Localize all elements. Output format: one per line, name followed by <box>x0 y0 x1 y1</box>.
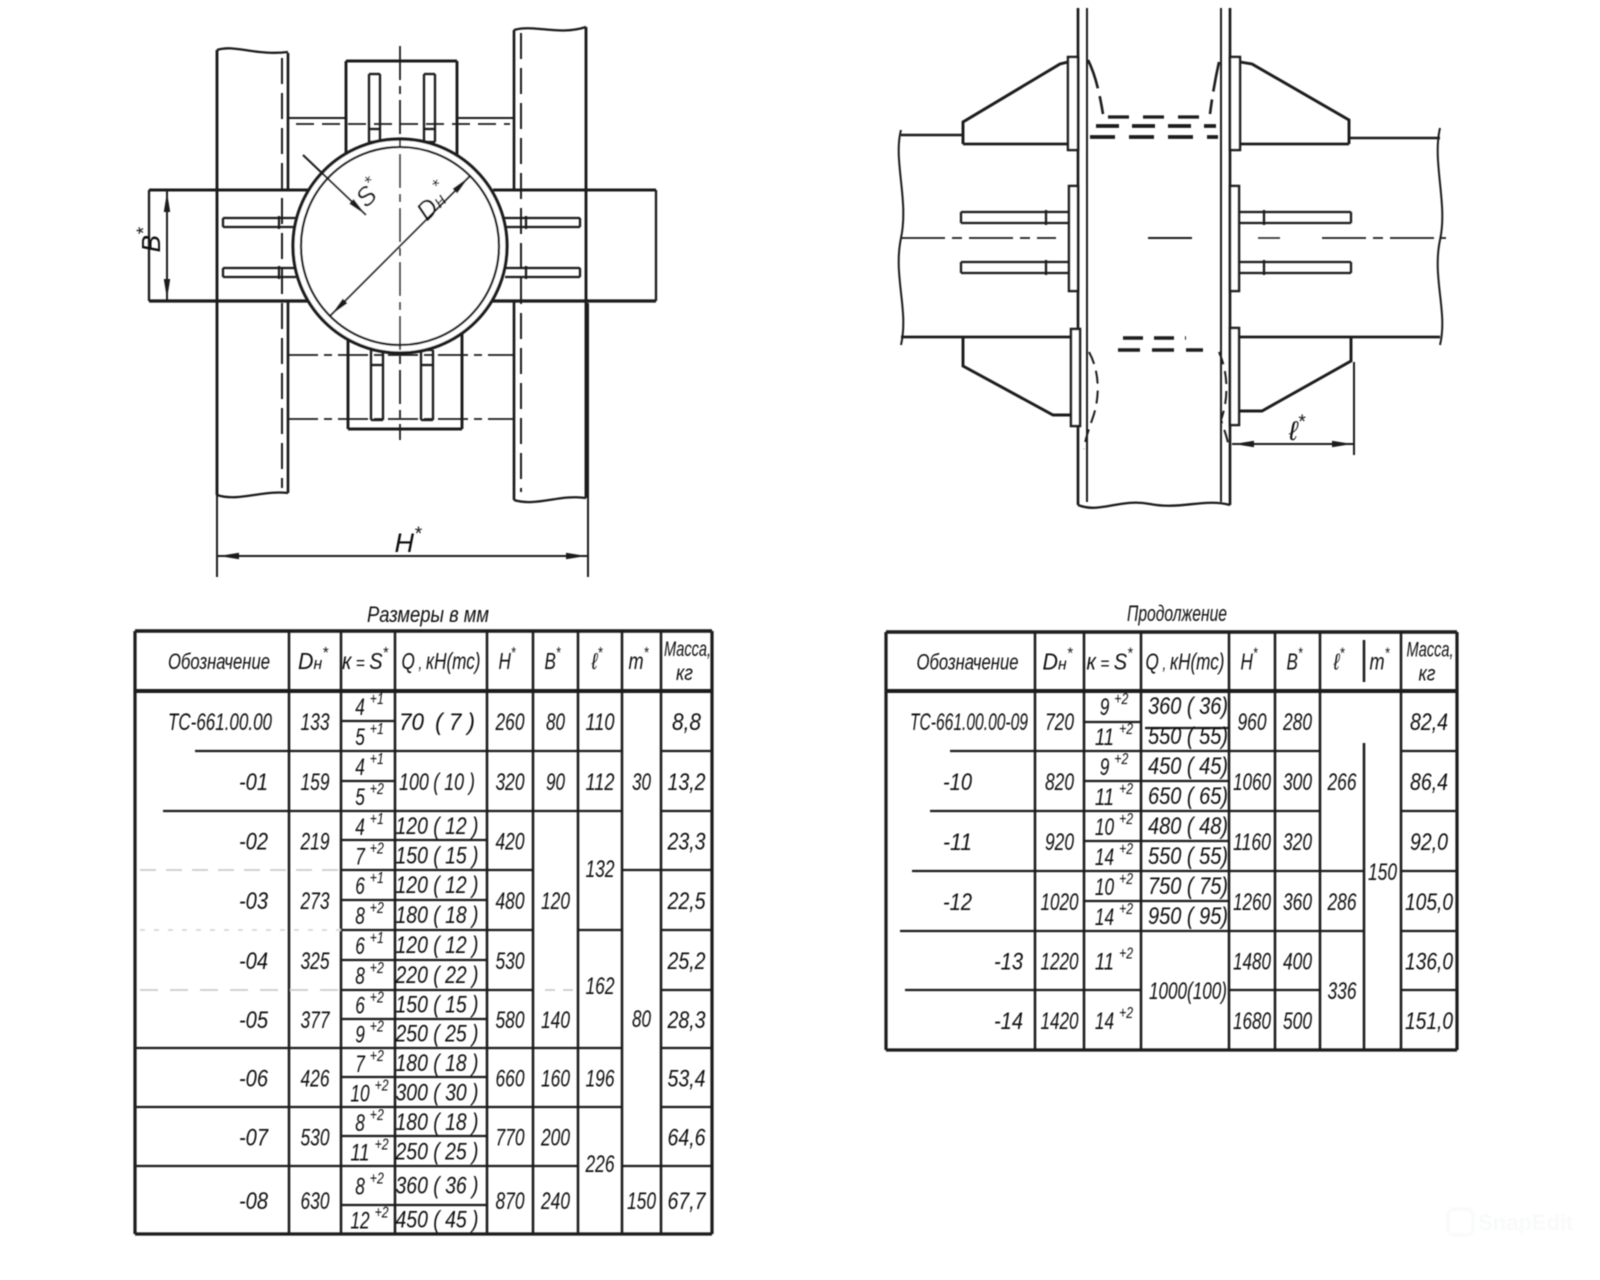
svg-text:+2: +2 <box>370 1107 384 1124</box>
svg-text:150: 150 <box>627 1188 656 1215</box>
svg-text:Q , кН(тс): Q , кН(тс) <box>402 648 481 674</box>
svg-text:4: 4 <box>355 754 365 781</box>
svg-text:-10: -10 <box>943 769 973 796</box>
svg-text:28,3: 28,3 <box>667 1007 706 1034</box>
svg-text:180 ( 18 ): 180 ( 18 ) <box>396 1109 479 1136</box>
svg-text:-14: -14 <box>994 1008 1023 1035</box>
svg-text:320: 320 <box>496 769 525 796</box>
svg-text:-02: -02 <box>239 829 268 856</box>
svg-text:+2: +2 <box>1119 841 1133 858</box>
svg-text:30: 30 <box>632 769 651 796</box>
svg-text:+2: +2 <box>370 990 384 1007</box>
svg-text:950 ( 95): 950 ( 95) <box>1148 903 1228 930</box>
svg-text:-06: -06 <box>239 1066 269 1093</box>
svg-text:1480: 1480 <box>1233 949 1271 976</box>
svg-text:6: 6 <box>355 993 365 1020</box>
svg-text:250 ( 25 ): 250 ( 25 ) <box>395 1138 479 1165</box>
svg-text:25,2: 25,2 <box>667 948 706 975</box>
svg-text:Q , кН(тс): Q , кН(тс) <box>1146 649 1225 675</box>
svg-text:260: 260 <box>495 709 525 736</box>
svg-text:377: 377 <box>301 1007 331 1034</box>
svg-text:8: 8 <box>355 1110 365 1137</box>
svg-text:-11: -11 <box>943 829 972 856</box>
svg-text:300 ( 30 ): 300 ( 30 ) <box>396 1079 479 1106</box>
svg-text:Размеры в мм: Размеры в мм <box>367 602 489 627</box>
svg-text:336: 336 <box>1328 978 1357 1005</box>
svg-text:23,3: 23,3 <box>667 829 706 856</box>
svg-text:13,2: 13,2 <box>668 769 706 796</box>
svg-text:530: 530 <box>301 1125 330 1152</box>
svg-text:250 ( 25 ): 250 ( 25 ) <box>395 1021 479 1048</box>
svg-text:9: 9 <box>1100 754 1110 781</box>
svg-text:480: 480 <box>496 888 525 915</box>
svg-text:400: 400 <box>1283 949 1312 976</box>
svg-text:64,6: 64,6 <box>668 1125 707 1152</box>
svg-text:159: 159 <box>301 769 330 796</box>
svg-text:+2: +2 <box>1119 946 1133 963</box>
svg-text:320: 320 <box>1283 829 1312 856</box>
svg-text:720: 720 <box>1045 709 1074 736</box>
svg-text:150 ( 15 ): 150 ( 15 ) <box>396 992 479 1019</box>
svg-text:1220: 1220 <box>1041 949 1079 976</box>
svg-text:100 ( 10 ): 100 ( 10 ) <box>399 769 475 796</box>
svg-text:140: 140 <box>541 1007 570 1034</box>
svg-text:136,0: 136,0 <box>1405 949 1454 976</box>
svg-text:8: 8 <box>355 963 365 990</box>
svg-text:650 ( 65): 650 ( 65) <box>1148 783 1228 810</box>
svg-text:580: 580 <box>496 1007 525 1034</box>
svg-text:14: 14 <box>1095 1008 1114 1035</box>
svg-text:4: 4 <box>355 814 365 841</box>
svg-text:-13: -13 <box>994 949 1024 976</box>
svg-text:750 ( 75): 750 ( 75) <box>1148 873 1228 900</box>
svg-text:286: 286 <box>1327 889 1357 916</box>
svg-text:SnapEdit: SnapEdit <box>1478 1210 1574 1235</box>
svg-text:660: 660 <box>496 1066 525 1093</box>
svg-text:-03: -03 <box>239 888 269 915</box>
svg-text:8: 8 <box>355 1174 365 1201</box>
svg-text:133: 133 <box>301 709 330 736</box>
svg-text:420: 420 <box>496 829 525 856</box>
svg-text:4: 4 <box>355 694 365 721</box>
svg-text:-01: -01 <box>239 769 268 796</box>
svg-text:7: 7 <box>355 843 366 870</box>
svg-text:1000(100): 1000(100) <box>1149 978 1227 1005</box>
svg-text:162: 162 <box>586 973 615 1000</box>
svg-text:11: 11 <box>1095 724 1114 751</box>
svg-text:+2: +2 <box>1119 781 1133 798</box>
svg-text:9: 9 <box>355 1022 365 1049</box>
svg-text:550 ( 55): 550 ( 55) <box>1148 843 1228 870</box>
svg-text:70 ( 7 ): 70 ( 7 ) <box>399 709 475 736</box>
svg-text:Обозначение: Обозначение <box>917 650 1019 675</box>
svg-text:+2: +2 <box>370 900 384 917</box>
svg-text:+2: +2 <box>1119 811 1133 828</box>
svg-text:450 ( 45 ): 450 ( 45 ) <box>396 1207 479 1234</box>
svg-text:630: 630 <box>301 1188 330 1215</box>
svg-text:266: 266 <box>1327 769 1357 796</box>
svg-text:кг: кг <box>1419 663 1436 686</box>
svg-text:10: 10 <box>1095 814 1115 841</box>
svg-text:6: 6 <box>355 933 365 960</box>
svg-text:220 ( 22 ): 220 ( 22 ) <box>395 962 479 989</box>
svg-text:53,4: 53,4 <box>668 1066 706 1093</box>
svg-text:-12: -12 <box>943 889 972 916</box>
svg-text:8,8: 8,8 <box>672 709 702 736</box>
svg-text:Обозначение: Обозначение <box>168 649 270 674</box>
svg-text:+2: +2 <box>370 840 384 857</box>
svg-text:+2: +2 <box>1119 871 1133 888</box>
svg-text:160: 160 <box>541 1066 570 1093</box>
svg-text:500: 500 <box>1283 1008 1312 1035</box>
svg-text:426: 426 <box>301 1066 330 1093</box>
svg-text:112: 112 <box>586 769 615 796</box>
svg-text:+1: +1 <box>370 870 384 887</box>
svg-text:120: 120 <box>541 888 570 915</box>
svg-text:150: 150 <box>1368 859 1397 886</box>
svg-text:180 ( 18 ): 180 ( 18 ) <box>396 1050 479 1077</box>
svg-text:+2: +2 <box>1114 751 1128 768</box>
svg-text:+2: +2 <box>1114 691 1128 708</box>
svg-text:11: 11 <box>1095 784 1114 811</box>
svg-text:8: 8 <box>355 903 365 930</box>
svg-text:1060: 1060 <box>1233 769 1271 796</box>
svg-text:+2: +2 <box>370 1019 384 1036</box>
svg-text:480 ( 48): 480 ( 48) <box>1148 813 1228 840</box>
svg-text:226: 226 <box>585 1151 615 1178</box>
svg-text:820: 820 <box>1045 769 1074 796</box>
svg-text:22,5: 22,5 <box>667 888 706 915</box>
svg-text:ТС-661.00.00: ТС-661.00.00 <box>168 709 272 736</box>
svg-text:450 ( 45): 450 ( 45) <box>1148 753 1228 780</box>
svg-text:1420: 1420 <box>1041 1008 1079 1035</box>
svg-text:+1: +1 <box>370 751 384 768</box>
svg-text:110: 110 <box>586 709 615 736</box>
svg-text:+2: +2 <box>375 1205 389 1222</box>
svg-text:300: 300 <box>1283 769 1312 796</box>
svg-text:+2: +2 <box>375 1077 389 1094</box>
svg-text:1020: 1020 <box>1041 889 1079 916</box>
svg-text:960: 960 <box>1238 709 1267 736</box>
svg-text:+2: +2 <box>370 960 384 977</box>
svg-text:360 ( 36): 360 ( 36) <box>1148 693 1228 720</box>
svg-text:120 ( 12 ): 120 ( 12 ) <box>396 932 479 959</box>
svg-text:+2: +2 <box>370 781 384 798</box>
svg-text:870: 870 <box>496 1188 525 1215</box>
svg-text:+1: +1 <box>370 930 384 947</box>
svg-text:+2: +2 <box>1119 1005 1133 1022</box>
svg-text:-05: -05 <box>239 1007 269 1034</box>
svg-text:105,0: 105,0 <box>1405 889 1454 916</box>
svg-text:-08: -08 <box>239 1188 269 1215</box>
svg-text:5: 5 <box>355 784 365 811</box>
svg-text:273: 273 <box>300 888 330 915</box>
svg-text:-04: -04 <box>239 948 268 975</box>
svg-text:+2: +2 <box>375 1136 389 1153</box>
svg-text:кг: кг <box>676 662 693 685</box>
svg-text:10: 10 <box>1095 874 1115 901</box>
svg-text:150 ( 15 ): 150 ( 15 ) <box>396 842 479 869</box>
svg-text:14: 14 <box>1095 844 1114 871</box>
svg-text:12: 12 <box>350 1208 369 1235</box>
svg-text:132: 132 <box>586 856 615 883</box>
svg-text:1260: 1260 <box>1233 889 1271 916</box>
svg-text:11: 11 <box>350 1139 369 1166</box>
svg-text:14: 14 <box>1095 904 1114 931</box>
svg-text:200: 200 <box>540 1125 570 1152</box>
svg-text:280: 280 <box>1282 709 1312 736</box>
svg-text:Масса,: Масса, <box>664 638 711 661</box>
svg-text:-07: -07 <box>239 1125 269 1152</box>
svg-text:+2: +2 <box>370 1048 384 1065</box>
svg-text:86,4: 86,4 <box>1410 769 1448 796</box>
svg-text:82,4: 82,4 <box>1410 709 1448 736</box>
svg-text:920: 920 <box>1045 829 1074 856</box>
svg-text:1680: 1680 <box>1233 1008 1271 1035</box>
svg-text:67,7: 67,7 <box>668 1188 707 1215</box>
svg-text:9: 9 <box>1100 694 1110 721</box>
svg-text:240: 240 <box>540 1188 570 1215</box>
svg-text:+1: +1 <box>370 811 384 828</box>
svg-text:151,0: 151,0 <box>1405 1008 1454 1035</box>
svg-text:+2: +2 <box>1119 721 1133 738</box>
svg-text:5: 5 <box>355 724 365 751</box>
svg-text:6: 6 <box>355 873 365 900</box>
svg-text:+1: +1 <box>370 691 384 708</box>
svg-text:219: 219 <box>300 829 330 856</box>
svg-text:360: 360 <box>1283 889 1312 916</box>
svg-text:7: 7 <box>355 1051 366 1078</box>
svg-text:120 ( 12 ): 120 ( 12 ) <box>396 872 479 899</box>
svg-text:92,0: 92,0 <box>1410 829 1449 856</box>
svg-text:120 ( 12 ): 120 ( 12 ) <box>396 813 479 840</box>
svg-text:ТС-661.00.00-09: ТС-661.00.00-09 <box>910 709 1028 736</box>
svg-text:196: 196 <box>586 1066 615 1093</box>
svg-text:+2: +2 <box>1119 901 1133 918</box>
svg-text:325: 325 <box>301 948 330 975</box>
svg-text:770: 770 <box>496 1125 525 1152</box>
svg-text:180 ( 18 ): 180 ( 18 ) <box>396 902 479 929</box>
svg-text:360 ( 36 ): 360 ( 36 ) <box>396 1173 479 1200</box>
svg-text:Масса,: Масса, <box>1407 639 1454 662</box>
svg-text:11: 11 <box>1095 949 1114 976</box>
svg-text:1160: 1160 <box>1233 829 1271 856</box>
svg-text:+2: +2 <box>370 1171 384 1188</box>
svg-text:550 ( 55): 550 ( 55) <box>1148 723 1228 750</box>
svg-text:80: 80 <box>546 709 565 736</box>
svg-text:+1: +1 <box>370 721 384 738</box>
svg-text:530: 530 <box>496 948 525 975</box>
svg-text:Продолжение: Продолжение <box>1127 601 1227 626</box>
svg-text:80: 80 <box>632 1006 651 1033</box>
svg-text:10: 10 <box>350 1080 370 1107</box>
svg-text:90: 90 <box>546 769 565 796</box>
